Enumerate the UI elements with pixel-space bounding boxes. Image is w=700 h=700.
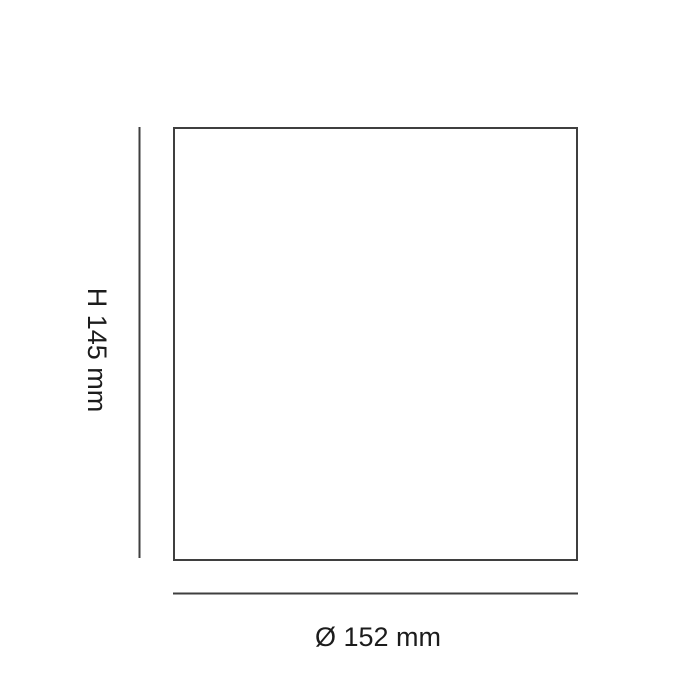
svg-text:Ø 152 mm: Ø 152 mm — [315, 622, 441, 652]
svg-text:H 145 mm: H 145 mm — [82, 288, 112, 413]
